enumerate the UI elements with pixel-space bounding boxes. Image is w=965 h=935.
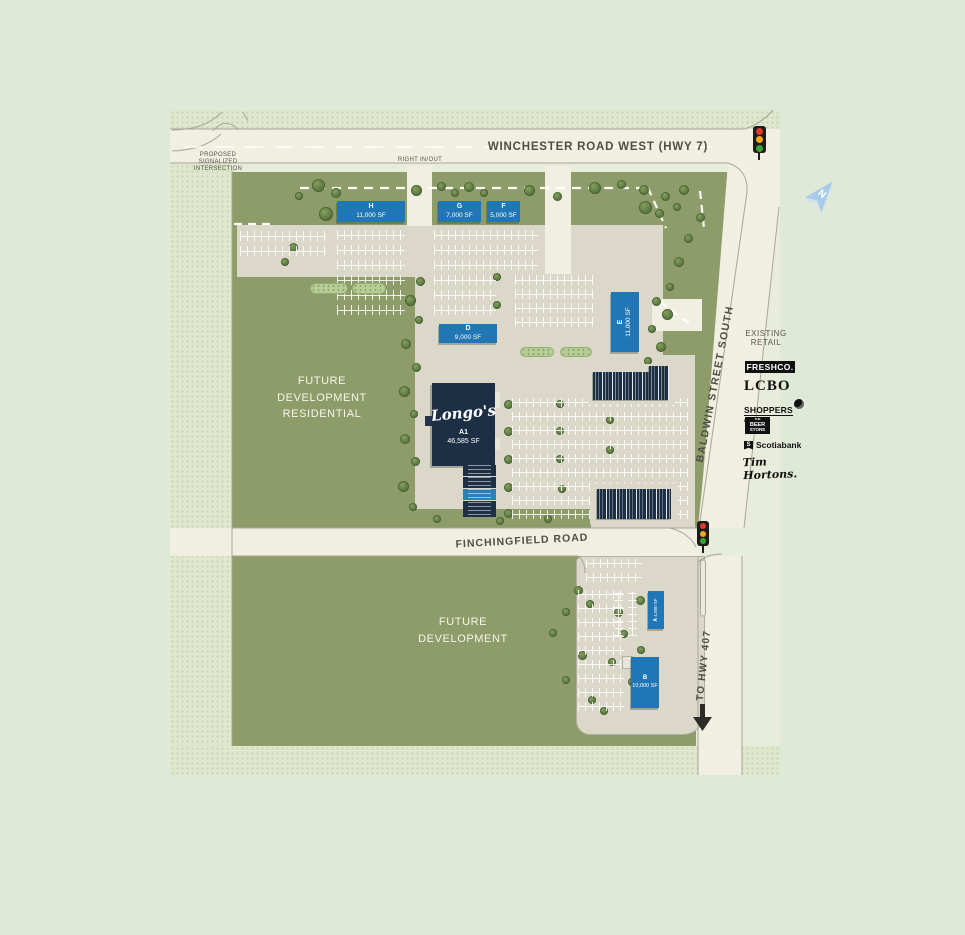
building-h-id: H	[368, 203, 373, 212]
building-f: F 5,000 SF	[487, 201, 520, 222]
building-e-size: 11,000 SF	[625, 307, 633, 337]
entry-drive-center	[545, 166, 571, 274]
small-unit-1	[463, 465, 496, 476]
signal-red	[756, 128, 763, 135]
entry-drive-west	[407, 166, 432, 226]
building-d-id: D	[465, 325, 470, 334]
road-label-winchester: WINCHESTER ROAD WEST (HWY 7)	[448, 141, 748, 153]
scotiabank-logo: S Scotiabank	[744, 440, 801, 450]
shoppers-wordmark: SHOPPERS	[744, 405, 793, 416]
building-h-size: 11,000 SF	[356, 212, 386, 220]
building-a-size: 4,000 SF	[653, 598, 659, 616]
shoppers-face-icon	[794, 399, 804, 409]
hatch-strip-left	[170, 129, 232, 775]
hatch-strip-top	[170, 110, 780, 129]
note-proposed-intersection: PROPOSED SIGNALIZED INTERSECTION	[178, 152, 258, 173]
entry-drive-east	[652, 299, 702, 331]
building-f-id: F	[501, 203, 505, 212]
building-g-size: 7,000 SF	[446, 212, 472, 220]
building-b-size: 10,000 SF	[632, 683, 657, 690]
north-letter: N	[815, 188, 828, 201]
signal-green	[756, 145, 763, 152]
building-d: D 9,000 SF	[439, 324, 497, 343]
a1-entry-notch-upper	[495, 392, 500, 408]
building-g-id: G	[457, 203, 462, 212]
site-plan-map: N H 11,000 SF G 7,000 SF F 5,000 SF D 9,…	[0, 0, 965, 935]
cru-strip-north	[593, 372, 649, 400]
small-unit-3	[463, 489, 496, 500]
traffic-light-icon-winchester	[753, 126, 766, 153]
note-right-in-out: RIGHT IN/OUT	[385, 157, 455, 164]
signal-red	[700, 523, 706, 529]
building-a1-size: 46,585 SF	[447, 438, 479, 445]
road-finchingfield-band	[170, 528, 700, 556]
scotiabank-wordmark: Scotiabank	[756, 440, 801, 450]
existing-retail-panel: EXISTING RETAIL FRESHCO. LCBO SHOPPERS D…	[733, 325, 811, 475]
small-unit-2	[463, 477, 496, 488]
signal-green	[700, 538, 706, 544]
building-a1-longos: Longo's A1 46,585 SF	[432, 383, 495, 466]
a1-entry-notch-lower	[495, 438, 500, 450]
building-e: E 11,000 SF	[611, 292, 639, 352]
cru-strip-south	[597, 489, 671, 519]
lcbo-logo: LCBO	[744, 378, 791, 395]
longos-logo: Longo's	[430, 401, 496, 425]
green-strip-south	[415, 509, 591, 528]
building-a-id: A	[653, 618, 659, 622]
building-h: H 11,000 SF	[337, 201, 405, 222]
beer-store-store: STORE	[750, 428, 765, 433]
freshco-logo: FRESHCO.	[745, 361, 795, 373]
cru-strip-north-end	[649, 366, 669, 400]
building-b: B 10,000 SF	[631, 657, 659, 708]
building-g: G 7,000 SF	[438, 201, 481, 222]
existing-retail-title: EXISTING RETAIL	[733, 329, 799, 347]
loading-dock	[425, 416, 432, 426]
signal-amber	[756, 136, 763, 143]
tim-hortons-logo: Tim Hortons.	[743, 454, 812, 482]
building-a1-id: A1	[459, 427, 468, 438]
small-unit-4	[463, 501, 496, 517]
southeast-parking-lot	[576, 556, 705, 735]
scotiabank-flag-icon: S	[744, 441, 753, 450]
building-b-id: B	[643, 675, 647, 683]
north-arrow-icon: N	[803, 175, 842, 215]
area-label-future-development: FUTURE DEVELOPMENT	[383, 614, 543, 647]
building-e-id: E	[617, 320, 625, 325]
beer-store-logo: THE BEER STORE	[745, 417, 770, 434]
building-f-size: 5,000 SF	[490, 212, 516, 220]
signal-amber	[700, 531, 706, 537]
hatch-strip-bottom	[170, 746, 780, 775]
building-d-size: 9,000 SF	[455, 334, 481, 342]
building-a: A 4,000 SF	[648, 591, 664, 629]
traffic-light-icon-finchingfield	[697, 521, 709, 546]
area-label-future-residential: FUTURE DEVELOPMENT RESIDENTIAL	[242, 373, 402, 423]
